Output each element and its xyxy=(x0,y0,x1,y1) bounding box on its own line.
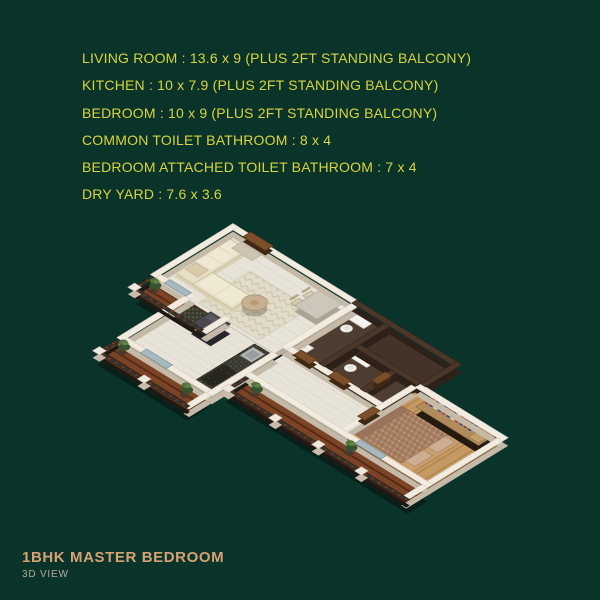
coffee-table-top-detail xyxy=(250,300,259,305)
plant-foliage xyxy=(153,280,160,284)
poster: LIVING ROOM : 13.6 x 9 (PLUS 2FT STANDIN… xyxy=(0,0,600,600)
plan-title: 1BHK MASTER BEDROOM xyxy=(22,549,224,566)
toilet-seat xyxy=(347,366,354,370)
plant-foliage xyxy=(122,341,129,345)
stove-burner xyxy=(227,373,230,375)
plan-caption: 1BHK MASTER BEDROOM 3D VIEW xyxy=(22,549,224,580)
plant-foliage xyxy=(349,442,356,446)
stove-burner xyxy=(213,381,216,383)
floorplan-3d-view xyxy=(0,0,600,600)
toilet-seat xyxy=(343,326,350,330)
plan-subtitle: 3D VIEW xyxy=(22,569,224,580)
stove-burner xyxy=(220,369,223,371)
plant-foliage xyxy=(254,384,261,388)
plant-foliage xyxy=(185,384,192,388)
stove-burner xyxy=(207,377,210,379)
